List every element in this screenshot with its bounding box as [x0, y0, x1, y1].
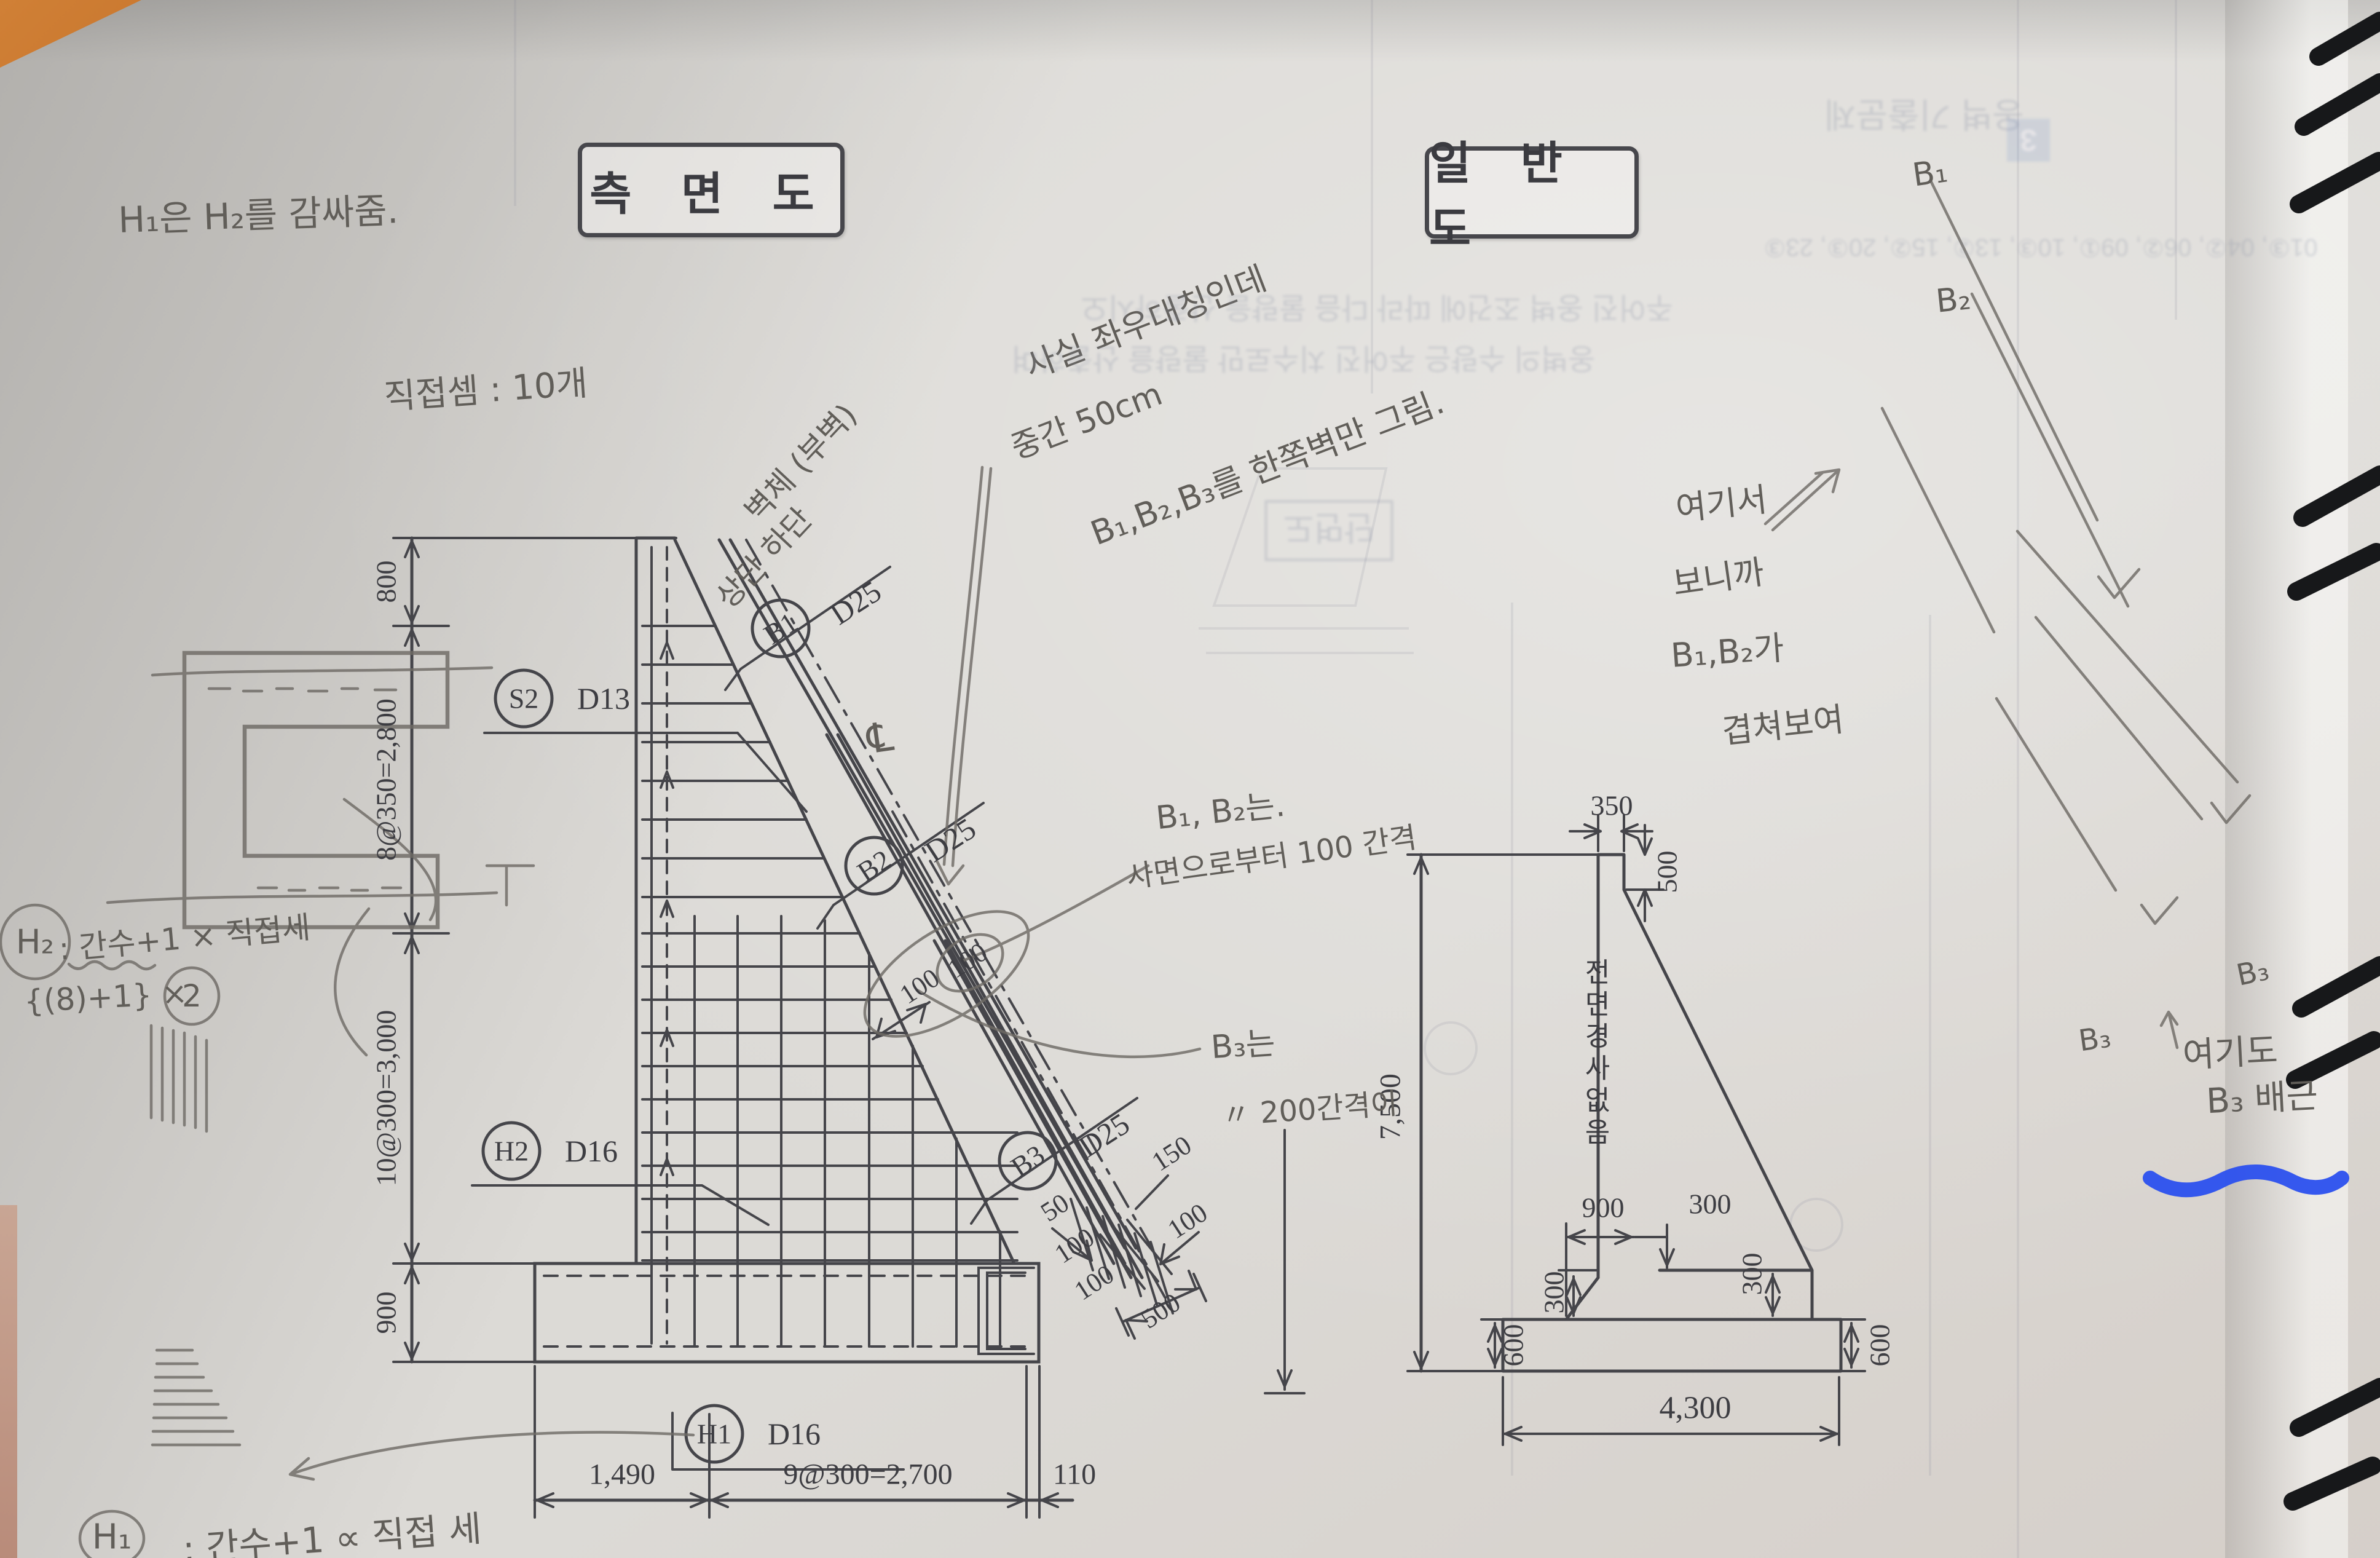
- bar-tag-h2: H2: [494, 1135, 529, 1168]
- note-view-4: 겹쳐보여: [1719, 692, 1846, 753]
- bar-tag-h1: H1: [697, 1418, 731, 1450]
- note-h1-wraps-h2: H₁은 H₂를 감싸줌.: [117, 181, 399, 243]
- formula-h1-line: : 간수+1 ∝ 직접 세: [181, 1500, 483, 1558]
- desk-corner: [0, 0, 141, 68]
- dim-100-b: 100: [942, 936, 993, 985]
- bar-size-h1: D16: [768, 1416, 821, 1452]
- sketch-label-b2: B₂: [1934, 280, 1972, 320]
- note-view-2: 보니까: [1669, 545, 1767, 606]
- formula-h2-line1: : 간수+1 × 직접세: [57, 903, 312, 968]
- note-b3-spacing: 〃 200간격이: [1220, 1079, 1399, 1134]
- dim-150: 150: [1146, 1129, 1197, 1178]
- dim-1490: 1,490: [589, 1458, 655, 1492]
- gdim-600-left: 600: [1497, 1324, 1530, 1367]
- gdim-4300: 4,300: [1660, 1390, 1732, 1426]
- under-page-edge: [0, 1205, 17, 1558]
- dim-110: 110: [1053, 1458, 1096, 1492]
- ghost-line2: 옹벽의 수량은 주어진 치수로만 물량을 산출하며: [1011, 340, 1595, 383]
- bar-tag-b2: B2: [851, 843, 897, 888]
- gdim-900: 900: [1582, 1192, 1625, 1224]
- gdim-500: 500: [1651, 851, 1684, 893]
- formula-h2-circled2: 2: [182, 978, 202, 1014]
- dim-500: 500: [1135, 1287, 1186, 1335]
- general-view-title: 일 반 도: [1425, 146, 1639, 239]
- note-here-too: 여기도: [2181, 1023, 2279, 1078]
- note-b1b2-head: B₁, B₂는.: [1153, 779, 1287, 839]
- note-view-1: 여기서: [1673, 472, 1769, 530]
- dim-100-c: 100: [1049, 1222, 1100, 1270]
- gdim-300-heel: 300: [1736, 1253, 1768, 1295]
- note-view-3: B₁,B₂가: [1669, 620, 1785, 677]
- gdim-350: 350: [1591, 789, 1633, 822]
- general-view-title-text: 일 반 도: [1429, 127, 1634, 258]
- bar-tag-s2: S2: [509, 682, 539, 715]
- side-view-title-text: 측 면 도: [589, 157, 832, 223]
- gdim-300-mid: 300: [1689, 1188, 1732, 1220]
- formula-h2-line2: {(8)+1} ×: [23, 975, 189, 1019]
- note-b3-head: B₃는: [1209, 1017, 1276, 1067]
- dim-9at300: 9@300=2,700: [783, 1458, 952, 1492]
- bar-size-b1: D25: [824, 573, 888, 632]
- dim-50: 50: [1035, 1187, 1075, 1228]
- gdim-300-left: 300: [1538, 1271, 1570, 1314]
- dim-800: 800: [370, 561, 403, 603]
- formula-h2-head: H₂: [16, 923, 54, 962]
- ghost-title: 옹벽 기출문제: [1824, 92, 2024, 142]
- bar-tag-b1: B1: [758, 606, 803, 651]
- centerline-symbol: ℄: [864, 713, 897, 763]
- ghost-line1: 주어진 옹벽 조건에 따라 다음 물량을 산출하시오: [1081, 289, 1673, 332]
- bar-tag-b3: B3: [1005, 1138, 1050, 1184]
- dim-100-d: 100: [1068, 1259, 1119, 1307]
- photographed-workbook-page: 측 면 도 일 반 도 800 8@350=2,800 10@300=3,000…: [0, 0, 2380, 1558]
- note-b3-rebar: B₃ 배근: [2205, 1068, 2319, 1123]
- label-b3-left: B₃: [2076, 1020, 2113, 1059]
- bar-size-b3: D25: [1072, 1105, 1136, 1165]
- gdim-600-right: 600: [1864, 1324, 1896, 1367]
- side-view-title: 측 면 도: [578, 143, 845, 237]
- dim-10at300: 10@300=3,000: [370, 1010, 403, 1187]
- bar-size-s2: D13: [577, 681, 630, 716]
- ghost-badge: 3: [2007, 119, 2050, 162]
- bar-size-h2: D16: [565, 1133, 618, 1169]
- sketch-label-b1: B₁: [1910, 152, 1950, 194]
- note-direct-count: 직접셈 : 10개: [382, 355, 589, 419]
- label-b3-right: B₃: [2234, 952, 2272, 993]
- note-middle-50cm: 중간 50cm: [1003, 368, 1167, 468]
- dim-100-a: 100: [894, 962, 945, 1011]
- dim-8at350: 8@350=2,800: [370, 698, 403, 861]
- formula-h1-head: H₁: [92, 1517, 132, 1557]
- dim-900: 900: [370, 1292, 403, 1334]
- ghost-codes: 01③, 04②, 06②, 09①, 10③, 13②, 15②, 20③, …: [1764, 233, 2318, 261]
- dim-100-e: 100: [1162, 1197, 1213, 1246]
- bar-size-b2: D25: [918, 810, 982, 869]
- ghost-section-box: 단면도: [1264, 500, 1393, 561]
- front-slope-note: 전면경사없음: [1575, 958, 1614, 1150]
